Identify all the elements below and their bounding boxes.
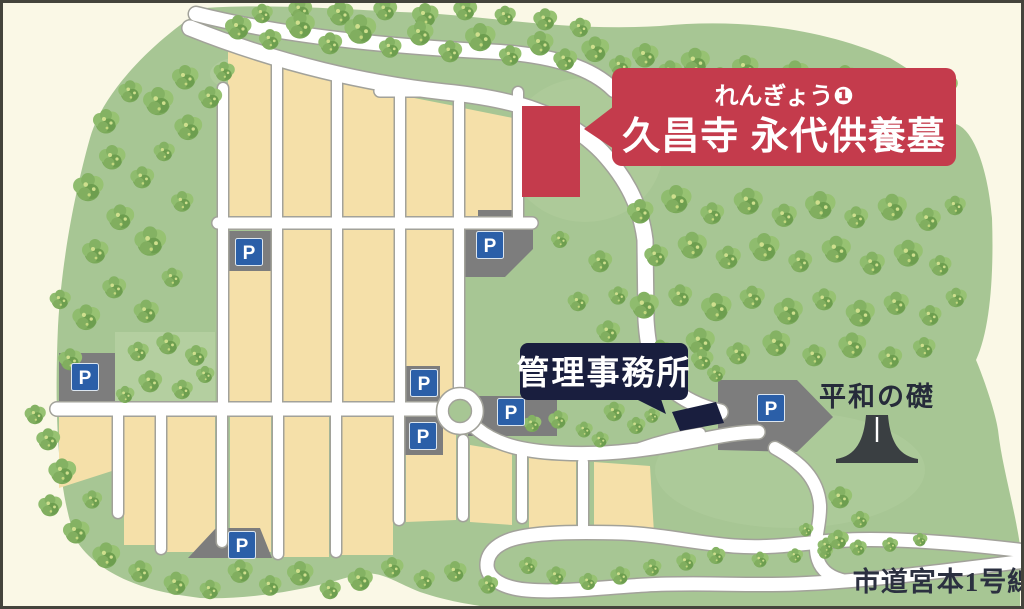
parking-sign-icon: P	[477, 232, 504, 259]
parking-sign-label: P	[417, 427, 430, 448]
burial-plot	[529, 455, 576, 530]
parking-sign-label: P	[418, 374, 431, 395]
parking-sign-icon: P	[498, 399, 525, 426]
burial-plot	[228, 52, 273, 218]
parking-sign-label: P	[79, 368, 92, 389]
burial-plot	[342, 228, 395, 403]
burial-plot	[404, 96, 455, 218]
parking-sign-icon: P	[236, 239, 263, 266]
office-label-text: 管理事務所	[517, 355, 692, 392]
burial-plot	[470, 445, 512, 525]
burial-plot	[281, 228, 334, 403]
parking-sign-icon: P	[758, 395, 785, 422]
parking-sign-label: P	[765, 399, 778, 420]
parking-sign-label: P	[243, 243, 256, 264]
eternal-memorial-banner: れんぎょう❶ 久昌寺 永代供養墓	[584, 68, 956, 166]
parking-sign-label: P	[236, 536, 249, 557]
burial-plot	[281, 64, 334, 218]
burial-plot	[342, 415, 393, 555]
peace-monument-label: 平和の礎	[819, 382, 935, 412]
parking-sign-icon: P	[410, 423, 437, 450]
burial-plot	[228, 271, 273, 403]
memorial-plot-marker	[522, 106, 580, 197]
temple-cemetery-map: PPPPPPPP れんぎょう❶ 久昌寺 永代供養墓 管理事務所 平和の礎 市道宮…	[0, 0, 1024, 609]
burial-plot	[463, 108, 513, 218]
burial-plot	[124, 415, 156, 545]
parking-sign-icon: P	[229, 532, 256, 559]
burial-plot	[342, 78, 395, 218]
roundabout	[437, 388, 484, 435]
burial-plot	[167, 415, 215, 552]
banner-subtitle: れんぎょう❶	[714, 82, 853, 110]
city-road-label: 市道宮本1号線	[853, 566, 1024, 597]
parking-sign-icon: P	[411, 370, 438, 397]
parking-sign-label: P	[505, 403, 518, 424]
banner-title: 久昌寺 永代供養墓	[622, 116, 946, 158]
burial-plot	[594, 462, 654, 533]
parking-sign-label: P	[484, 236, 497, 257]
burial-plot	[284, 415, 329, 557]
parking-sign-icon: P	[72, 364, 99, 391]
